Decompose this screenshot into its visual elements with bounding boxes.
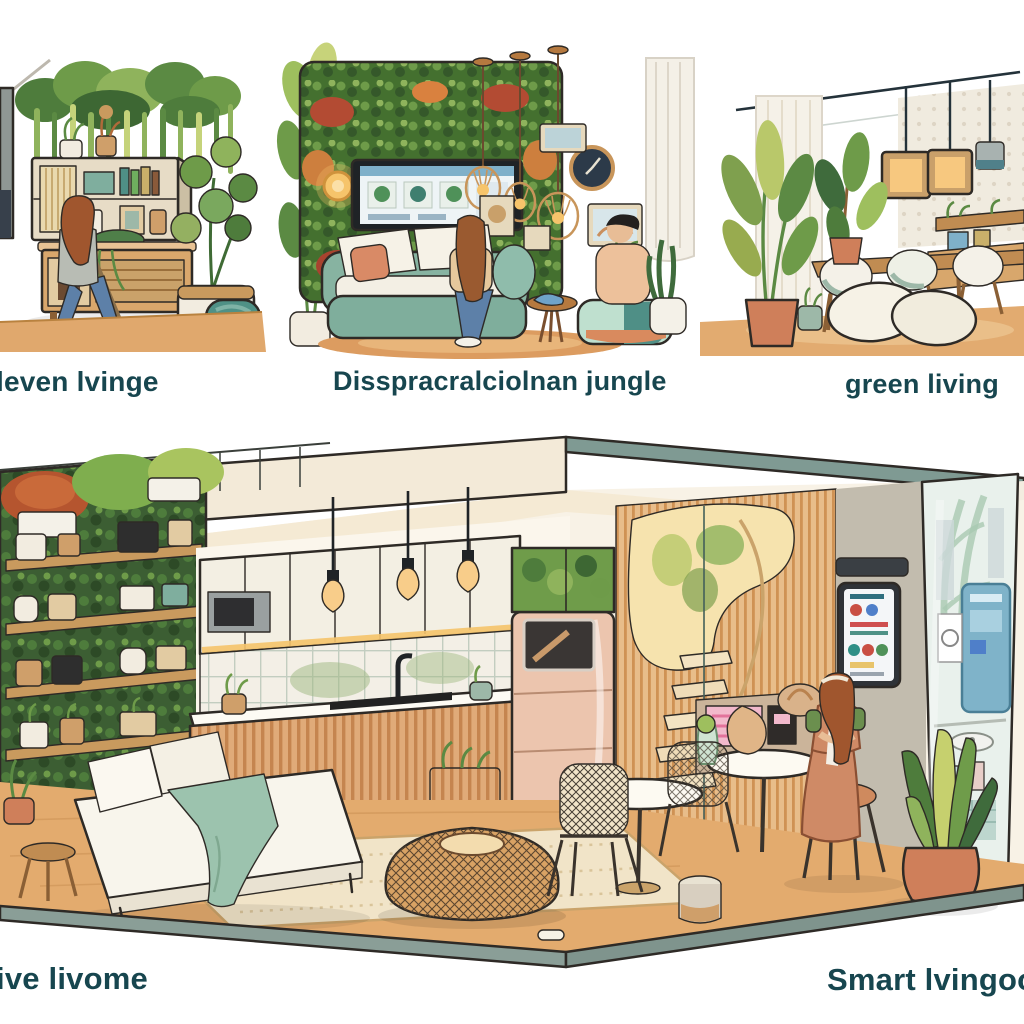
caption-bottom-right: Smart lvingoom xyxy=(827,962,1024,998)
caption-bottom-left: ive livome xyxy=(0,961,148,997)
caption-panel-3: green living xyxy=(845,369,999,400)
smart-home-panel xyxy=(838,583,900,687)
illustration-page: leven lvinge Disspracralciolnan jungle g… xyxy=(0,0,1024,1024)
illustration-canvas xyxy=(0,0,1024,1024)
small-bucket xyxy=(679,876,721,923)
caption-panel-1: leven lvinge xyxy=(0,366,159,398)
panel-green-wall-living-room xyxy=(272,40,694,359)
panel-green-dining-scene xyxy=(700,72,1024,356)
wall-clock xyxy=(571,147,613,189)
panel-plant-shelf-scene xyxy=(0,60,266,352)
smart-livingroom-cutaway xyxy=(0,437,1024,967)
caption-panel-2: Disspracralciolnan jungle xyxy=(333,366,667,397)
